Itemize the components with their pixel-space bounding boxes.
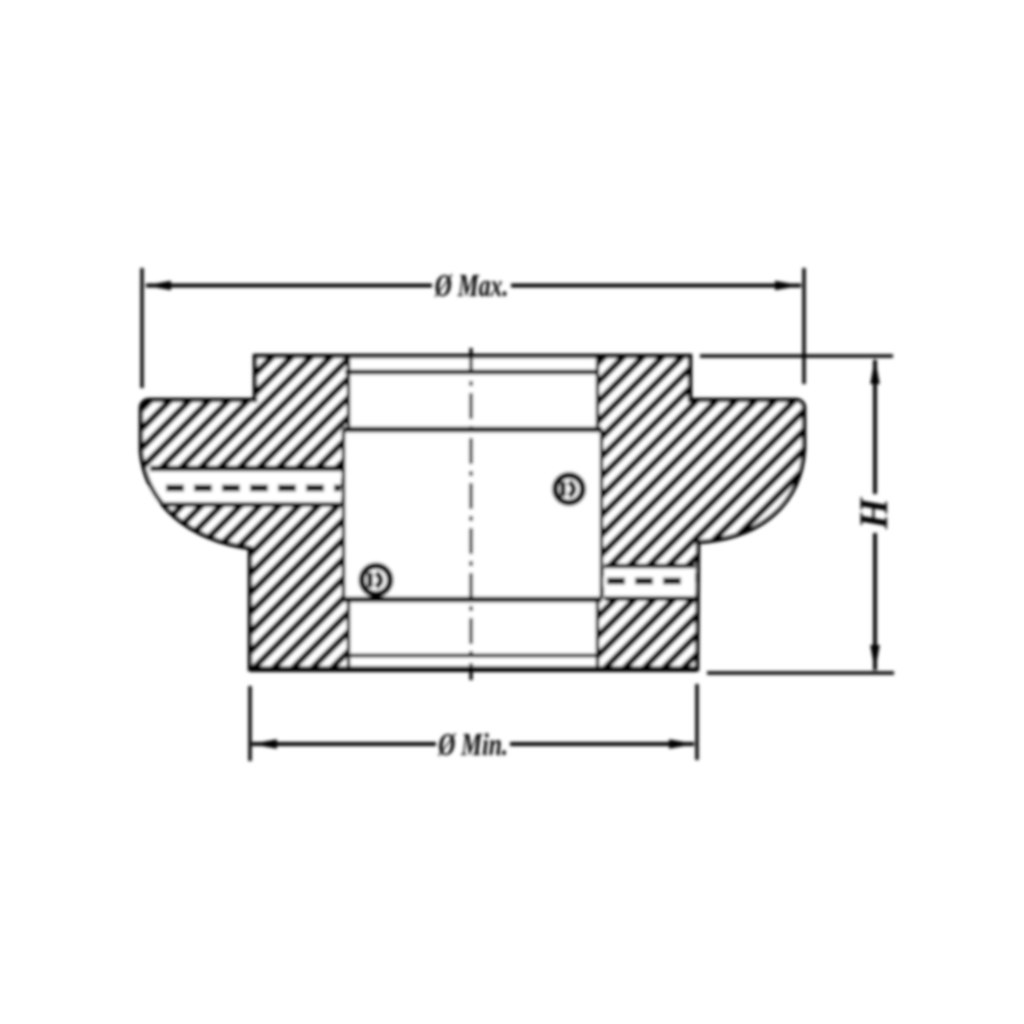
svg-text:Ø Min.: Ø Min. [437,728,507,763]
svg-text:Ø Max.: Ø Max. [434,269,508,304]
svg-text:H: H [851,496,896,530]
